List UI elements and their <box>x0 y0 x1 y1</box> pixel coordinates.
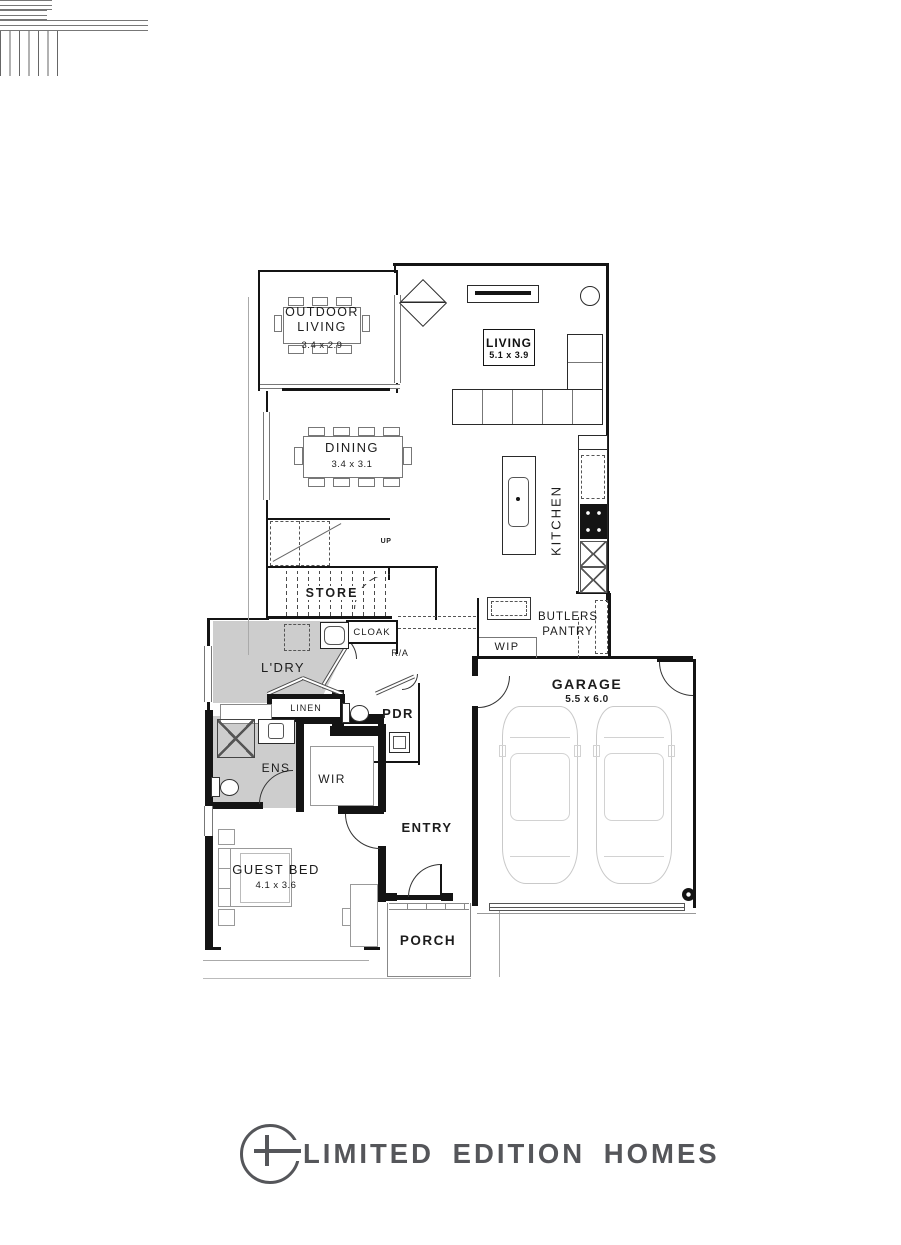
chair <box>403 447 412 465</box>
cooktop-icon <box>580 504 607 539</box>
wall <box>258 270 260 391</box>
nightstand <box>218 909 235 926</box>
chair <box>383 427 400 436</box>
window <box>204 806 213 836</box>
floor-lamp-icon <box>580 286 600 306</box>
bed-headboard <box>218 848 231 907</box>
toilet-icon <box>350 705 369 722</box>
washer-space <box>284 624 310 651</box>
stair-landing-line <box>299 521 300 566</box>
sofa <box>452 389 603 425</box>
room-label-outdoor-living-2: LIVING <box>297 320 346 334</box>
room-label-living: LIVING <box>486 336 532 350</box>
tap-icon <box>516 497 520 501</box>
wall <box>266 518 390 520</box>
bulkhead-line <box>398 616 476 629</box>
wall <box>266 566 438 568</box>
wall <box>330 726 382 736</box>
wall <box>207 618 269 620</box>
floor-plan-page: CLOAK LINEN LIVING 5.1 x 3.9 <box>0 0 901 1245</box>
wall <box>441 893 453 901</box>
wall <box>338 806 384 814</box>
tv-icon <box>475 291 531 295</box>
kitchen-sink <box>508 477 529 527</box>
room-label-garage: GARAGE <box>552 676 622 692</box>
cloak-closet: CLOAK <box>346 620 398 644</box>
wall <box>258 270 398 272</box>
door-swing <box>478 676 510 708</box>
wall <box>477 656 610 659</box>
room-dims-outdoor-living: 3.4 x 2.9 <box>302 340 343 351</box>
chair <box>333 478 350 487</box>
logo: LIMITED EDITION HOMES <box>240 1124 720 1184</box>
stair-landing <box>270 521 330 566</box>
room-label-guest-bed: GUEST BED <box>232 862 320 877</box>
room-dims-dining: 3.4 x 3.1 <box>332 459 373 470</box>
stairs <box>0 31 58 76</box>
sliding-door-panel <box>282 388 390 391</box>
wall <box>472 706 478 906</box>
garage-outer-line <box>477 913 696 914</box>
door-swing <box>408 864 441 897</box>
toilet-icon <box>220 779 239 796</box>
room-label-store: STORE <box>303 586 362 600</box>
room-label-cloak: CLOAK <box>353 627 390 638</box>
wall <box>211 802 263 809</box>
room-dims-garage: 5.5 x 6.0 <box>565 694 608 705</box>
wall <box>266 616 392 619</box>
door-swing <box>345 814 380 849</box>
chair <box>308 478 325 487</box>
porch-threshold <box>389 903 469 910</box>
return-air-label: R/A <box>391 648 408 658</box>
wall <box>608 593 611 658</box>
room-label-wir: WIR <box>318 772 346 786</box>
room-label-laundry: L'DRY <box>261 660 305 675</box>
room-label-entry: ENTRY <box>401 820 452 835</box>
room-label-powder: PDR <box>382 706 414 721</box>
bed-blanket <box>240 853 290 903</box>
room-label-dining: DINING <box>325 440 379 455</box>
chair <box>274 315 282 332</box>
powder-basin-bowl <box>393 736 406 749</box>
chair <box>362 315 370 332</box>
stairs-up-label: UP <box>381 538 392 545</box>
logo-text: LIMITED EDITION HOMES <box>303 1138 720 1170</box>
wall <box>378 724 386 812</box>
room-dims-guest-bed: 4.1 x 3.6 <box>256 880 297 891</box>
wall <box>610 656 657 659</box>
desk <box>350 884 378 947</box>
room-label-outdoor-living-1: OUTDOOR <box>285 305 359 319</box>
shower <box>217 719 255 758</box>
car-icon <box>596 706 672 884</box>
room-label-linen: LINEN <box>290 703 322 713</box>
chair <box>358 427 375 436</box>
car-icon <box>502 706 578 884</box>
room-label-kitchen: KITCHEN <box>549 481 564 561</box>
kitchen-cabinet-end <box>578 435 608 450</box>
wip-bench-line <box>536 637 537 658</box>
room-dims-living: 5.1 x 3.9 <box>489 350 529 360</box>
window <box>0 10 47 20</box>
wip-bench-line <box>479 637 537 638</box>
fridge-inner <box>491 601 527 616</box>
room-label-porch: PORCH <box>400 933 456 948</box>
room-label-wip: WIP <box>495 641 520 653</box>
wall <box>472 656 478 676</box>
chair <box>383 478 400 487</box>
door-swing <box>659 662 693 696</box>
desk-chair <box>342 908 351 926</box>
kitchen-cabinet <box>581 455 605 499</box>
chair <box>308 427 325 436</box>
chair <box>294 447 303 465</box>
logo-circle-plus-icon <box>240 1124 300 1184</box>
wall <box>693 659 696 908</box>
window <box>394 295 401 383</box>
sofa-chaise <box>567 334 603 390</box>
room-label-butlers-2: PANTRY <box>542 626 594 638</box>
oven-cabinet <box>580 541 607 567</box>
window <box>204 646 212 702</box>
toilet-icon <box>211 777 220 797</box>
wall <box>435 566 437 620</box>
wall <box>207 618 210 648</box>
ensuite-basin <box>268 723 284 739</box>
chair <box>333 427 350 436</box>
wall <box>205 836 213 950</box>
window <box>0 0 52 10</box>
garage-panel-door <box>489 903 685 911</box>
linen-closet: LINEN <box>267 694 345 722</box>
chair <box>358 478 375 487</box>
window <box>263 412 270 500</box>
plan-badge-icon <box>682 888 695 901</box>
pantry-shelving <box>595 600 608 654</box>
room-label-butlers-1: BUTLERS <box>538 611 598 623</box>
living-label-box: LIVING 5.1 x 3.9 <box>483 329 535 366</box>
side-table-icon <box>399 279 447 327</box>
window <box>0 20 148 31</box>
wall <box>364 947 380 950</box>
toilet-icon <box>342 703 350 723</box>
oven-cabinet <box>580 567 607 593</box>
wall <box>393 263 608 266</box>
wall <box>205 947 221 950</box>
room-label-ensuite: ENS <box>262 761 291 775</box>
wall <box>418 683 420 765</box>
nightstand <box>218 829 235 845</box>
wall <box>477 598 479 656</box>
laundry-trough-basin <box>324 626 345 645</box>
wall <box>383 893 397 901</box>
wall <box>296 714 304 812</box>
